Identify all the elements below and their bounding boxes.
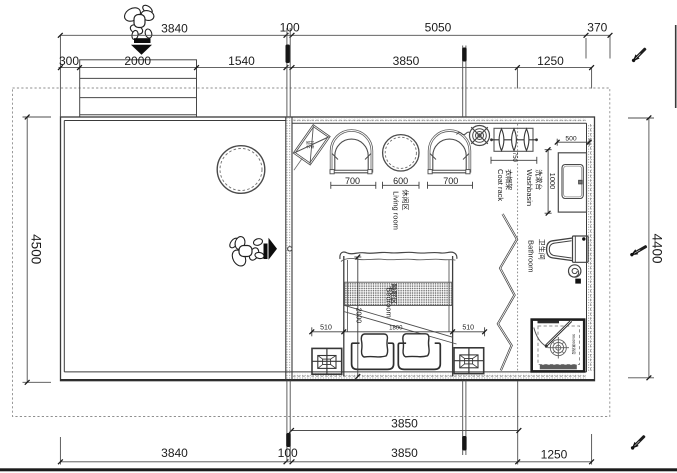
svg-text:3850: 3850 [393, 54, 420, 68]
svg-text:100: 100 [278, 446, 298, 460]
svg-text:750: 750 [511, 152, 517, 163]
svg-text:1540: 1540 [228, 54, 255, 68]
svg-text:Washbasin: Washbasin [525, 169, 534, 206]
svg-text:休闲区: 休闲区 [401, 190, 410, 211]
svg-text:架子: 架子 [306, 141, 312, 149]
svg-text:Bathroom: Bathroom [527, 240, 536, 273]
svg-text:Living room: Living room [392, 191, 401, 230]
svg-text:510: 510 [320, 325, 332, 332]
svg-text:1250: 1250 [537, 54, 564, 68]
svg-text:3850: 3850 [391, 416, 418, 430]
svg-text:370: 370 [587, 21, 607, 35]
svg-text:600: 600 [393, 176, 408, 186]
svg-text:3850: 3850 [391, 446, 418, 460]
svg-text:4500: 4500 [29, 234, 44, 264]
svg-text:2000: 2000 [354, 308, 361, 324]
svg-text:Coat rack: Coat rack [496, 169, 505, 201]
svg-text:2000: 2000 [124, 54, 151, 68]
svg-text:卫生间: 卫生间 [538, 239, 547, 260]
svg-text:500: 500 [565, 136, 577, 143]
svg-text:3840: 3840 [161, 446, 188, 460]
svg-text:700: 700 [443, 176, 458, 186]
svg-text:4400: 4400 [649, 233, 664, 263]
svg-text:衣帽架: 衣帽架 [505, 169, 514, 190]
svg-text:1800: 1800 [389, 326, 403, 332]
svg-text:90х90淋浴房: 90х90淋浴房 [571, 334, 576, 355]
svg-text:1250: 1250 [541, 447, 568, 461]
svg-text:5050: 5050 [425, 21, 452, 35]
svg-text:300: 300 [59, 54, 79, 68]
svg-text:3840: 3840 [161, 21, 188, 35]
svg-text:Bedroom: Bedroom [385, 287, 394, 317]
svg-text:洗漱台: 洗漱台 [535, 169, 544, 190]
svg-text:700: 700 [345, 176, 360, 186]
svg-text:510: 510 [462, 325, 474, 332]
svg-text:100: 100 [280, 21, 300, 35]
svg-text:1000: 1000 [548, 173, 557, 190]
